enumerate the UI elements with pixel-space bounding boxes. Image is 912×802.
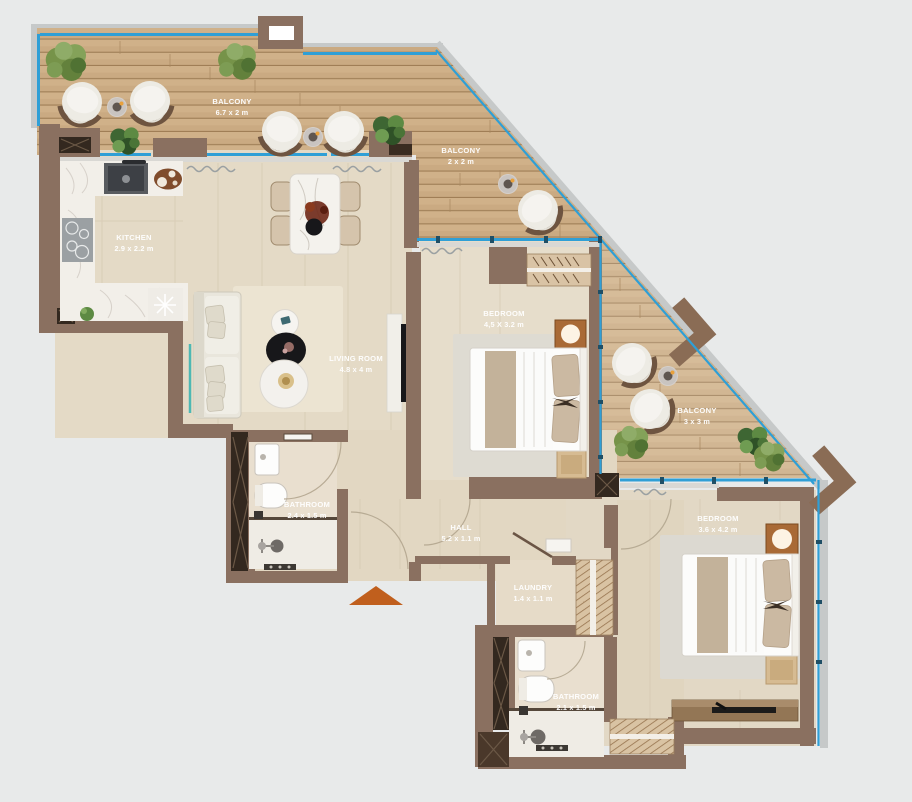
svg-text:LIVING ROOM: LIVING ROOM [329, 354, 383, 363]
svg-text:KITCHEN: KITCHEN [116, 233, 152, 242]
svg-text:4,5 X 3.2 m: 4,5 X 3.2 m [484, 320, 524, 329]
svg-text:1.4 x 1.1 m: 1.4 x 1.1 m [513, 594, 552, 603]
svg-text:BALCONY: BALCONY [212, 97, 251, 106]
svg-text:BATHROOM: BATHROOM [284, 500, 330, 509]
svg-text:BATHROOM: BATHROOM [553, 692, 599, 701]
svg-text:LAUNDRY: LAUNDRY [514, 583, 553, 592]
svg-text:BALCONY: BALCONY [441, 146, 480, 155]
svg-text:3.6 x 4.2 m: 3.6 x 4.2 m [698, 525, 737, 534]
svg-text:BEDROOM: BEDROOM [697, 514, 738, 523]
svg-text:6.7 x 2 m: 6.7 x 2 m [216, 108, 249, 117]
svg-text:2 x 2 m: 2 x 2 m [448, 157, 474, 166]
svg-text:BALCONY: BALCONY [677, 406, 716, 415]
svg-text:2.1 x 1.5 m: 2.1 x 1.5 m [556, 703, 595, 712]
svg-text:BEDROOM: BEDROOM [483, 309, 524, 318]
svg-text:4.8 x 4 m: 4.8 x 4 m [340, 365, 373, 374]
svg-text:3 x 3 m: 3 x 3 m [684, 417, 710, 426]
svg-text:2.9 x 2.2 m: 2.9 x 2.2 m [114, 244, 153, 253]
svg-text:5.2 x 1.1 m: 5.2 x 1.1 m [441, 534, 480, 543]
svg-text:2.4 x 1.5 m: 2.4 x 1.5 m [287, 511, 326, 520]
svg-text:HALL: HALL [450, 523, 471, 532]
